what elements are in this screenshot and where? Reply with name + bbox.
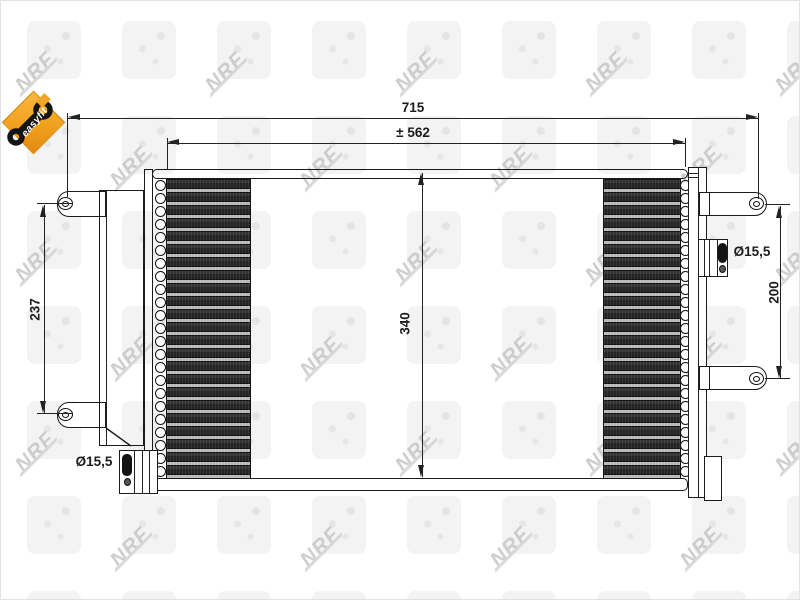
watermark-stamp bbox=[692, 21, 746, 79]
condenser-technical-drawing: NRFNRFNRFNRFNRFNRFNRFNRFNRFNRFNRFNRFNRFN… bbox=[0, 0, 800, 600]
watermark-stamp bbox=[407, 306, 461, 364]
dim-arrow-237-bottom bbox=[40, 401, 46, 413]
tube-end-left bbox=[155, 232, 166, 243]
left-port-line-1 bbox=[134, 450, 135, 494]
pipe-cap-line-1 bbox=[688, 173, 698, 174]
tube-end-left bbox=[155, 401, 166, 412]
left-top-mounting-hole-inner bbox=[62, 201, 69, 207]
tube-end-left bbox=[155, 310, 166, 321]
dim-line-715 bbox=[68, 118, 758, 119]
tube-end-left bbox=[155, 180, 166, 191]
watermark-stamp bbox=[312, 211, 366, 269]
watermark-stamp bbox=[407, 496, 461, 554]
tube-end-left bbox=[155, 323, 166, 334]
dim-label-core-height: 340 bbox=[398, 304, 413, 344]
tube-end-left bbox=[155, 375, 166, 386]
watermark-stamp bbox=[787, 591, 800, 600]
tube-end-left bbox=[155, 414, 166, 425]
tube-end-left bbox=[155, 297, 166, 308]
watermark-stamp bbox=[217, 591, 271, 600]
tube-end-left bbox=[155, 271, 166, 282]
dim-arrow-200-top bbox=[776, 206, 782, 218]
dim-arrow-200-bottom bbox=[776, 366, 782, 378]
core-fins-right bbox=[603, 179, 681, 478]
dim-arrow-715-left bbox=[68, 114, 80, 120]
left-port-line-3 bbox=[149, 450, 150, 494]
tube-end-left bbox=[155, 362, 166, 373]
watermark-stamp bbox=[597, 591, 651, 600]
right-bottom-tab-block bbox=[699, 366, 710, 390]
dim-ext-562-right bbox=[685, 138, 686, 167]
tube-end-left bbox=[155, 219, 166, 230]
tube-end-left bbox=[155, 427, 166, 438]
dim-label-core-width: ± 562 bbox=[373, 125, 453, 140]
watermark-stamp bbox=[502, 401, 556, 459]
watermark-stamp bbox=[502, 591, 556, 600]
dim-label-total-width: 715 bbox=[373, 100, 453, 115]
watermark-stamp bbox=[312, 401, 366, 459]
dim-ext-200-top bbox=[765, 204, 790, 205]
bottom-right-foot bbox=[704, 456, 722, 501]
dim-arrow-715-right bbox=[746, 114, 758, 120]
dim-line-237 bbox=[44, 205, 45, 413]
watermark-stamp bbox=[312, 591, 366, 600]
dim-label-right-mount-span: 200 bbox=[767, 273, 782, 313]
watermark-stamp bbox=[787, 116, 800, 174]
watermark-stamp bbox=[27, 496, 81, 554]
right-top-tab-block bbox=[699, 192, 710, 216]
watermark-stamp bbox=[217, 496, 271, 554]
dim-arrow-340-top bbox=[418, 173, 424, 185]
watermark-stamp bbox=[312, 21, 366, 79]
dim-arrow-562-right bbox=[673, 139, 685, 145]
dim-arrow-562-left bbox=[167, 139, 179, 145]
right-top-mounting-hole-inner bbox=[753, 201, 760, 207]
right-port-dot-icon bbox=[719, 265, 726, 273]
tube-end-left bbox=[155, 206, 166, 217]
watermark-stamp bbox=[597, 116, 651, 174]
watermark-stamp bbox=[407, 591, 461, 600]
right-port-diameter-label: Ø15,5 bbox=[717, 244, 787, 259]
tube-end-left bbox=[155, 336, 166, 347]
tube-end-left bbox=[155, 284, 166, 295]
dim-arrow-237-top bbox=[40, 205, 46, 217]
watermark-stamp bbox=[502, 211, 556, 269]
core-fins-left bbox=[166, 179, 251, 478]
right-port-line-2 bbox=[709, 239, 710, 277]
left-bracket-flange-line bbox=[106, 190, 107, 446]
watermark-stamp bbox=[597, 496, 651, 554]
left-port-line-2 bbox=[142, 450, 143, 494]
watermark-stamp bbox=[27, 591, 81, 600]
left-side-plate bbox=[144, 169, 153, 492]
watermark-stamp bbox=[692, 591, 746, 600]
right-bottom-mounting-hole-inner bbox=[753, 376, 760, 382]
dim-label-left-mount-span: 237 bbox=[28, 290, 43, 330]
bottom-header-tank bbox=[152, 478, 688, 491]
dim-line-562 bbox=[167, 143, 685, 144]
watermark-stamp bbox=[787, 496, 800, 554]
dim-line-340 bbox=[422, 173, 423, 477]
tube-end-left bbox=[155, 193, 166, 204]
dim-ext-715-left bbox=[67, 113, 68, 197]
dim-ext-562-left bbox=[167, 138, 168, 170]
dim-ext-237-bottom bbox=[37, 413, 73, 414]
left-port-dot-icon bbox=[124, 478, 131, 486]
dim-arrow-340-bottom bbox=[418, 465, 424, 477]
watermark-stamp bbox=[122, 591, 176, 600]
watermark-stamp bbox=[787, 306, 800, 364]
dim-ext-200-bottom bbox=[765, 378, 790, 379]
tube-end-left bbox=[155, 349, 166, 360]
tube-end-left bbox=[155, 245, 166, 256]
dim-ext-237-top bbox=[37, 203, 73, 204]
dim-ext-715-right bbox=[758, 113, 759, 199]
tube-end-left bbox=[155, 388, 166, 399]
right-port-line-1 bbox=[704, 239, 705, 277]
watermark-stamp bbox=[502, 21, 556, 79]
tube-end-left bbox=[155, 258, 166, 269]
receiver-drier-pipe-line bbox=[698, 167, 699, 498]
pipe-cap-line-2 bbox=[688, 177, 698, 178]
left-port-diameter-label: Ø15,5 bbox=[59, 454, 129, 469]
watermark-stamp bbox=[217, 116, 271, 174]
watermark-stamp bbox=[122, 21, 176, 79]
